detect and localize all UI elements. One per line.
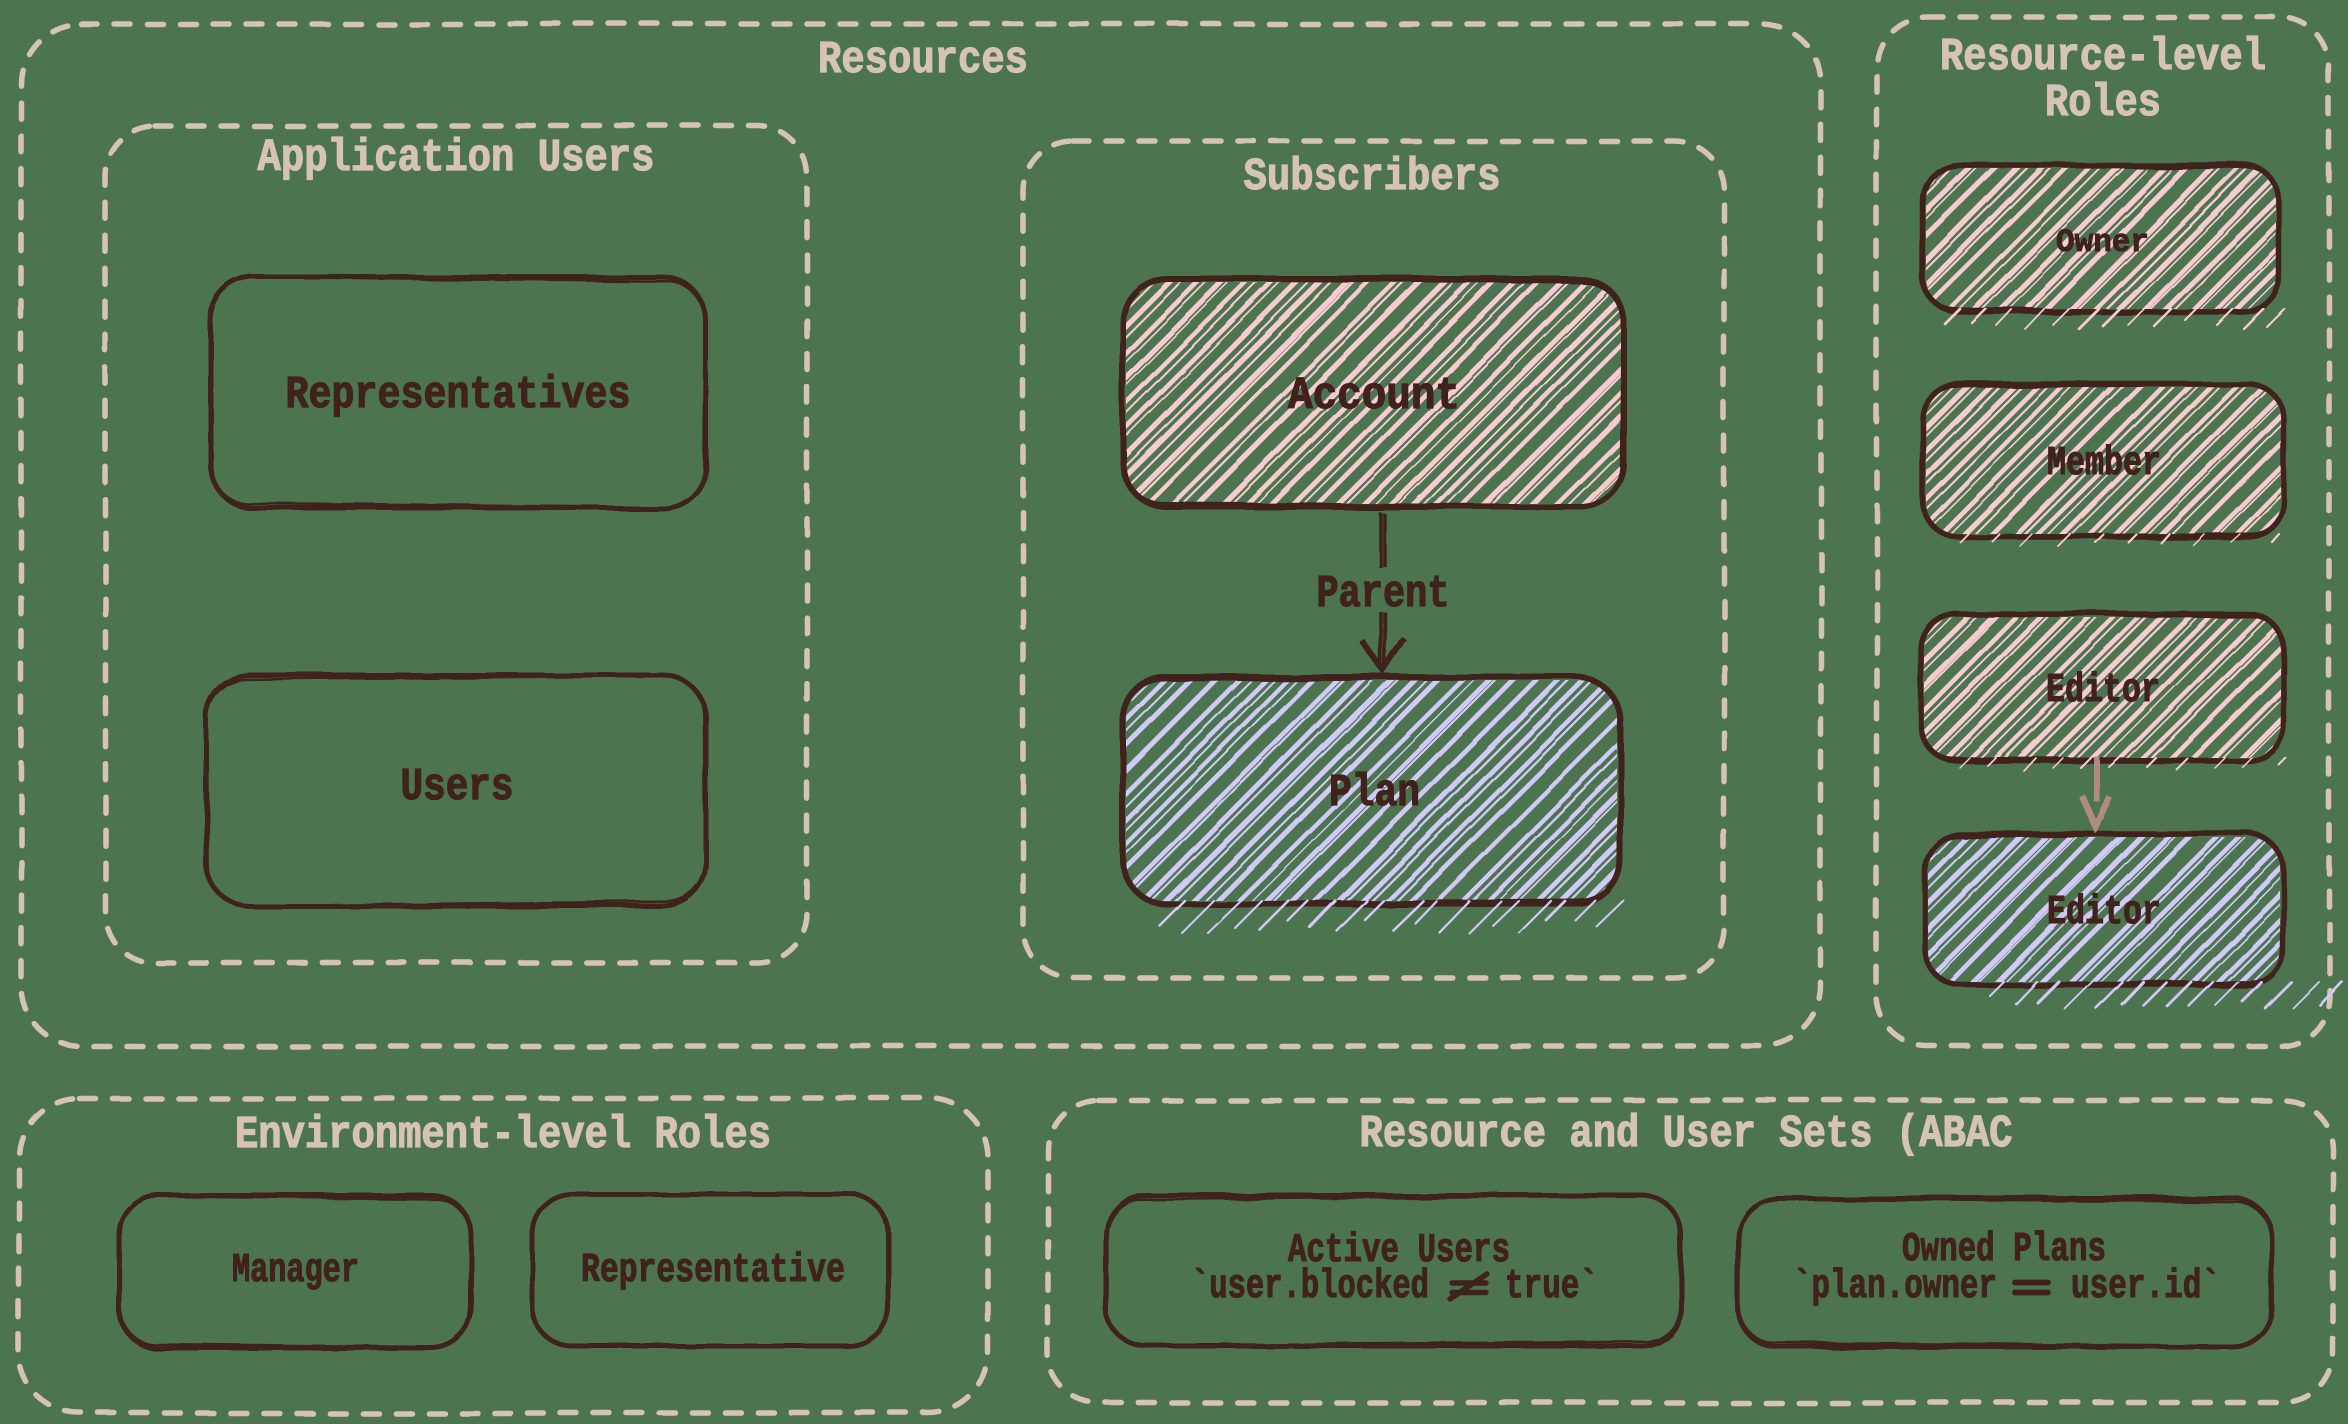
svg-text:Users: Users <box>401 762 514 813</box>
svg-text:Plan: Plan <box>1329 768 1420 819</box>
svg-text:true`: true` <box>1505 1264 1598 1310</box>
svg-text:Editor: Editor <box>2047 890 2161 936</box>
svg-text:Roles: Roles <box>2045 78 2161 129</box>
svg-text:Manager: Manager <box>232 1248 359 1294</box>
svg-text:Environment-level Roles: Environment-level Roles <box>235 1110 771 1161</box>
svg-text:Representatives: Representatives <box>286 370 631 421</box>
svg-text:Account: Account <box>1288 371 1460 422</box>
svg-text:Resource and User Sets (ABAC: Resource and User Sets (ABAC <box>1360 1109 2013 1160</box>
svg-text:Parent: Parent <box>1317 569 1450 620</box>
svg-text:Member: Member <box>2047 441 2161 487</box>
svg-text:user.id`: user.id` <box>2071 1264 2220 1310</box>
svg-text:Subscribers: Subscribers <box>1244 152 1501 203</box>
svg-text:Owner: Owner <box>2056 224 2149 261</box>
svg-text:Resources: Resources <box>818 35 1028 86</box>
svg-text:Editor: Editor <box>2046 668 2160 714</box>
svg-text:Representative: Representative <box>581 1248 845 1294</box>
svg-text:`plan.owner: `plan.owner <box>1793 1264 1997 1310</box>
svg-text:`user.blocked: `user.blocked <box>1191 1264 1429 1310</box>
svg-text:Application Users: Application Users <box>258 133 655 184</box>
svg-text:Resource-level: Resource-level <box>1940 32 2266 83</box>
